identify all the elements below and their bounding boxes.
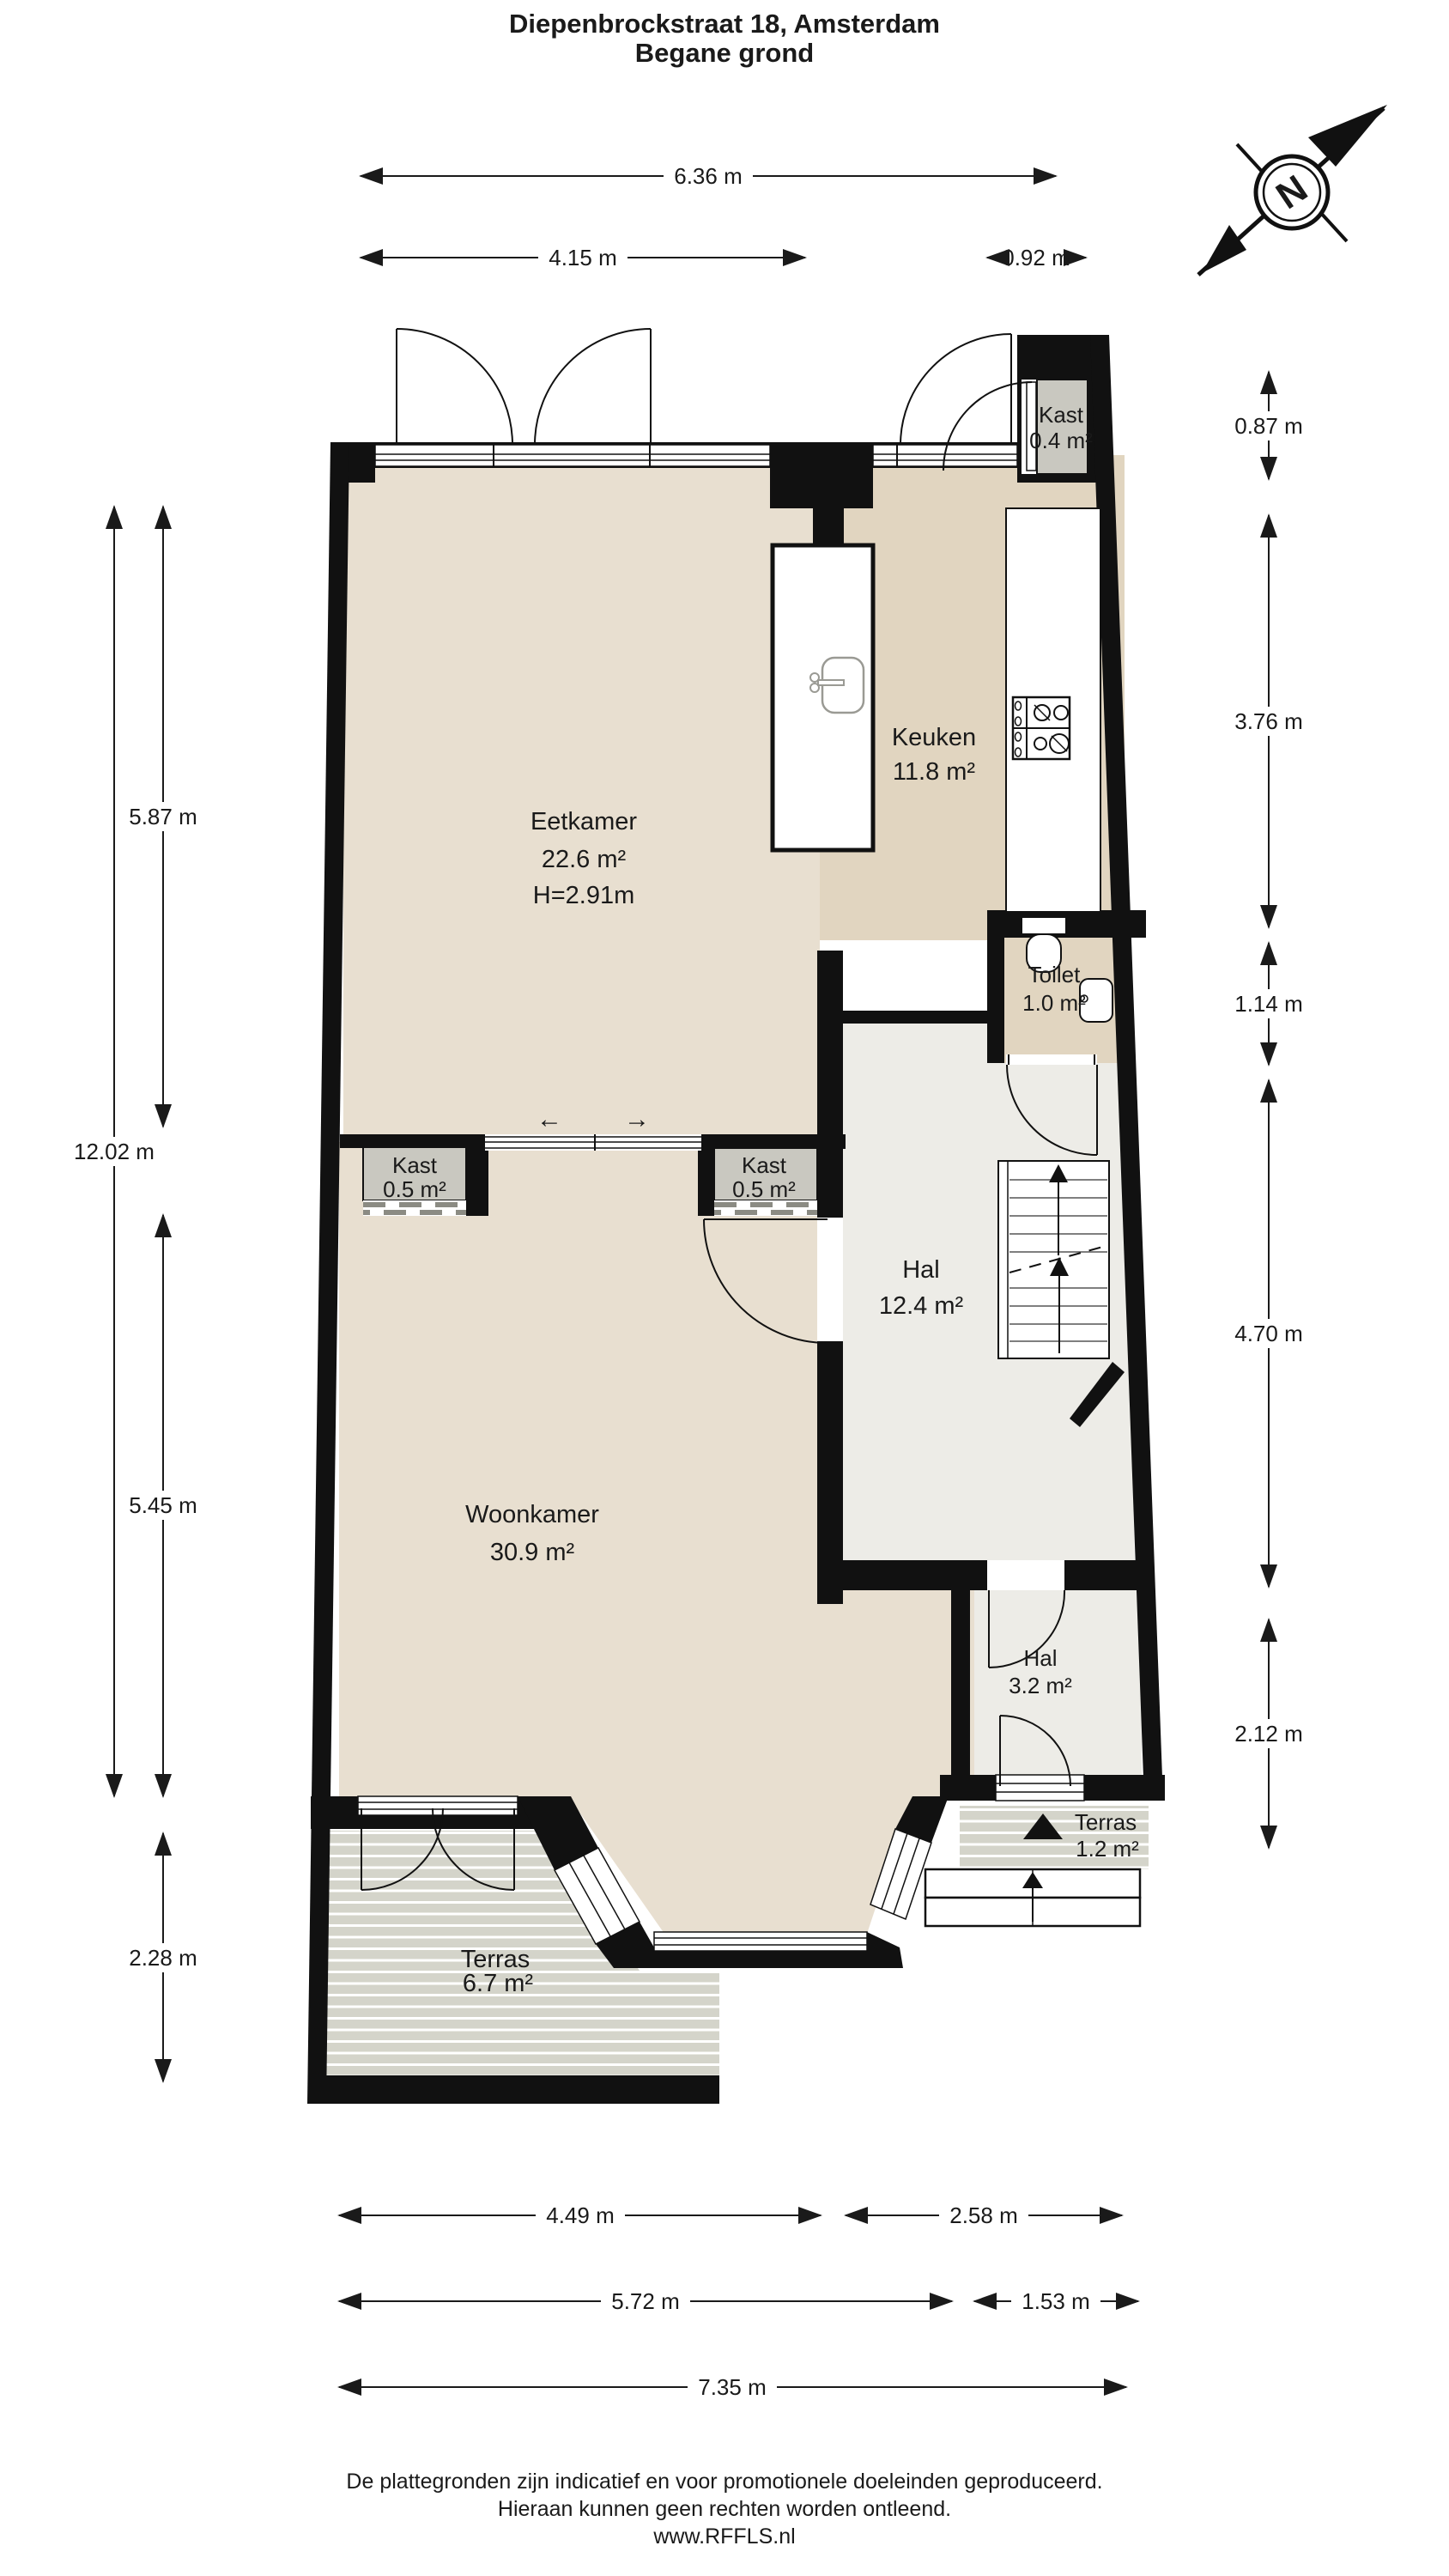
- dim-bottom-449: 4.49 m: [546, 2202, 615, 2228]
- sliding-door-left-arrow-icon: ←: [537, 1105, 562, 1133]
- toilet-tank-icon: [1022, 917, 1066, 934]
- label-hal-small-area: 3.2 m²: [1009, 1673, 1072, 1698]
- label-hal-area: 12.4 m²: [879, 1292, 964, 1320]
- compass-icon: N: [1198, 105, 1387, 275]
- dim-right-114: 1.14 m: [1234, 991, 1303, 1017]
- stove-icon: [1013, 697, 1070, 759]
- island-faucet-icon: [818, 680, 844, 685]
- label-kast-right-area: 0.5 m²: [732, 1176, 796, 1202]
- label-kast-right-name: Kast: [742, 1152, 787, 1178]
- dim-left-587: 5.87 m: [129, 804, 197, 829]
- dim-top-636: 6.36 m: [674, 163, 743, 189]
- dim-right-470: 4.70 m: [1234, 1321, 1303, 1346]
- label-toilet-area: 1.0 m²: [1022, 990, 1086, 1016]
- dim-bottom-153: 1.53 m: [1022, 2288, 1090, 2314]
- label-woonkamer-name: Woonkamer: [465, 1501, 599, 1528]
- label-keuken-area: 11.8 m²: [893, 758, 976, 786]
- footer-disclaimer-line2: Hieraan kunnen geen rechten worden ontle…: [498, 2497, 951, 2521]
- footer: De plattegronden zijn indicatief en voor…: [346, 2470, 1102, 2549]
- label-kast-top-name: Kast: [1039, 402, 1084, 428]
- label-terras-small-area: 1.2 m²: [1076, 1836, 1139, 1862]
- dim-right-212: 2.12 m: [1234, 1721, 1303, 1747]
- label-keuken-name: Keuken: [892, 724, 976, 751]
- label-eetkamer-height: H=2.91m: [533, 882, 634, 909]
- label-eetkamer-area: 22.6 m²: [542, 846, 627, 873]
- footer-disclaimer-line1: De plattegronden zijn indicatief en voor…: [346, 2470, 1102, 2494]
- sliding-door-right-arrow-icon: →: [624, 1105, 650, 1133]
- label-kast-top-area: 0.4 m²: [1029, 428, 1093, 453]
- dim-top-415: 4.15 m: [549, 245, 617, 270]
- dim-bottom-572: 5.72 m: [611, 2288, 680, 2314]
- dim-left-545: 5.45 m: [129, 1492, 197, 1518]
- dim-bottom-735: 7.35 m: [698, 2374, 767, 2400]
- label-toilet-name: Toilet: [1028, 962, 1081, 987]
- stairs: [998, 1161, 1109, 1358]
- room-eetkamer-floor-strip: [771, 945, 820, 1142]
- room-woonkamer-floor: [339, 1142, 841, 1799]
- label-terras-small-name: Terras: [1075, 1809, 1137, 1835]
- dim-left-228: 2.28 m: [129, 1945, 197, 1971]
- dim-right-376: 3.76 m: [1234, 708, 1303, 734]
- dim-top-092: 0.92 m: [1002, 245, 1070, 270]
- label-kast-left-area: 0.5 m²: [383, 1176, 446, 1202]
- floorplan-svg: Diepenbrockstraat 18, Amsterdam Begane g…: [0, 0, 1449, 2576]
- footer-website: www.RFFLS.nl: [652, 2524, 795, 2549]
- floorplan-page: Diepenbrockstraat 18, Amsterdam Begane g…: [0, 0, 1449, 2576]
- dim-right-087: 0.87 m: [1234, 413, 1303, 439]
- dim-left-1202: 12.02 m: [74, 1139, 155, 1164]
- label-terras-large-area: 6.7 m²: [463, 1970, 534, 1997]
- label-eetkamer-name: Eetkamer: [530, 808, 637, 835]
- dim-bottom-258: 2.58 m: [949, 2202, 1018, 2228]
- label-kast-left-name: Kast: [392, 1152, 438, 1178]
- label-woonkamer-area: 30.9 m²: [490, 1539, 575, 1566]
- label-hal-name: Hal: [902, 1256, 940, 1284]
- room-eetkamer-floor: [343, 455, 820, 1142]
- page-title-line1: Diepenbrockstraat 18, Amsterdam: [509, 9, 940, 39]
- label-hal-small-name: Hal: [1023, 1645, 1057, 1671]
- title: Diepenbrockstraat 18, Amsterdam Begane g…: [509, 9, 940, 68]
- page-title-line2: Begane grond: [635, 38, 814, 68]
